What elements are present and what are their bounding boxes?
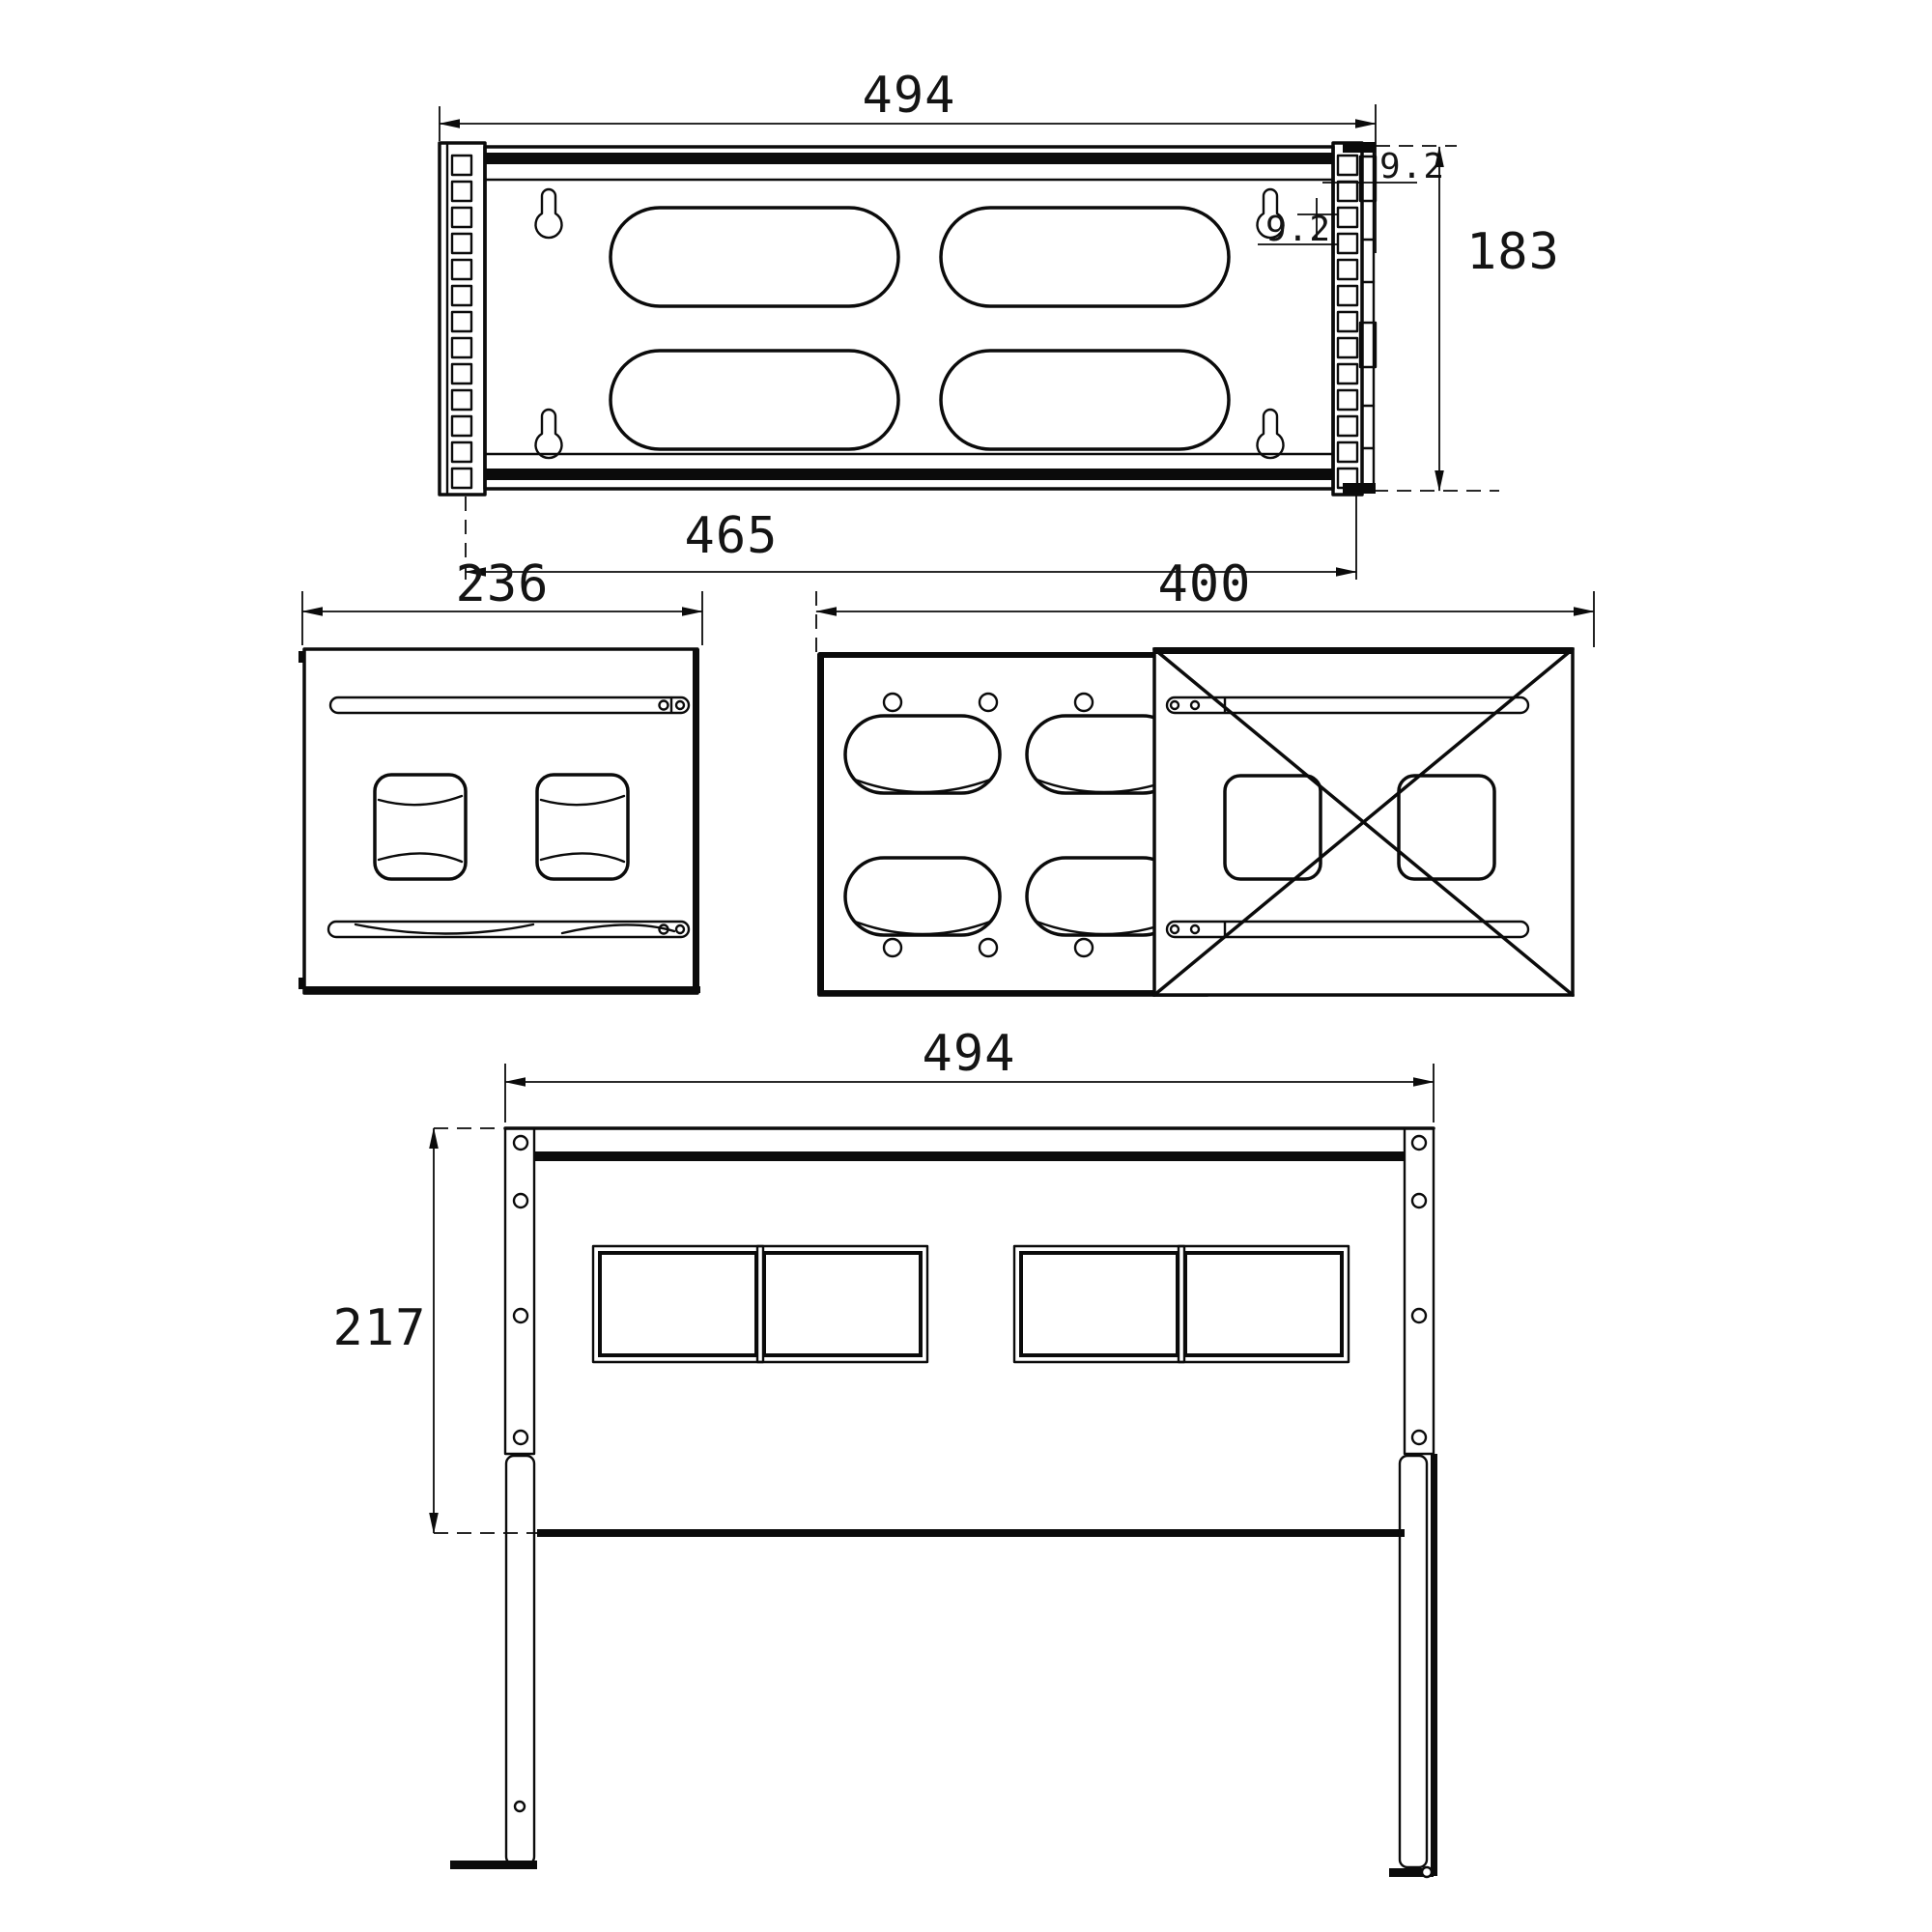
top-panel [485,147,1333,489]
right-rail [1333,142,1376,495]
front-view: 494 217 [333,1025,1437,1877]
keyhole-bottom-right [1258,410,1284,458]
dim-front-height: 217 [333,1128,541,1533]
dim-label-side-width: 236 [456,555,550,613]
right-leg [1389,1454,1437,1877]
side-panel [298,649,700,993]
front-left-rail [505,1128,534,1454]
front-cutouts [593,1246,1349,1362]
keyhole-bottom-left [536,410,562,458]
keyhole-top-left [536,189,562,238]
rack-bracket-drawing: 494 [0,0,1932,1932]
side-top-bar [330,697,689,713]
dim-label-front-height: 217 [333,1299,427,1357]
dim-label-depth: 400 [1158,555,1252,613]
side-bottom-bar [328,922,689,937]
bottom-panel-view: 400 [816,555,1594,995]
left-leg [450,1456,537,1869]
dim-side-width: 236 [302,555,702,645]
dim-front-width: 494 [505,1025,1434,1122]
dim-label-front-width: 494 [923,1025,1016,1083]
front-right-rail [1405,1128,1434,1454]
front-panel [505,1128,1434,1537]
cable-cutouts [611,208,1229,449]
dim-hole-offset: 9.2 [1322,146,1457,186]
crossed-side-panel [1154,647,1573,995]
dim-label-hole-offset: 9.2 [1379,147,1445,186]
dim-label-inner-width: 465 [685,507,779,565]
left-rail [440,143,485,495]
dim-label-top-width: 494 [863,67,956,125]
dim-label-top-height: 183 [1466,223,1560,281]
base-panel [817,652,1207,995]
side-square-cutouts [375,775,628,879]
dim-label-hole-pitch: 9.2 [1265,210,1331,249]
dim-top-height: 183 [1350,147,1560,491]
technical-drawing-page: 494 [0,0,1932,1932]
dim-hole-pitch: 9.2 [1258,198,1339,249]
dim-depth: 400 [816,555,1594,653]
top-view: 494 [440,67,1560,580]
side-view: 236 [298,555,702,993]
